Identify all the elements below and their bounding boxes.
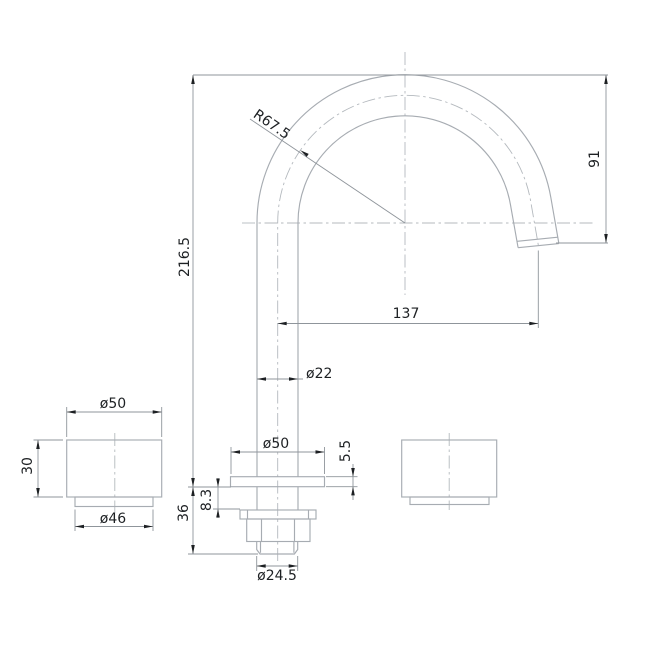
left-handle: [67, 440, 162, 507]
arrow-plate-thickness-bottom: [351, 487, 355, 496]
arrow-pipe-dia-left: [257, 377, 266, 381]
dim-label-base-plate-thickness: 5.5: [338, 440, 354, 462]
arrow-counter-clearance-bottom: [216, 509, 220, 518]
left-handle-skirt: [75, 497, 153, 507]
arrow-counter-clearance-top: [216, 479, 220, 488]
dim-label-total-height: 216.5: [177, 237, 193, 277]
dim-label-thread-diameter: ø24.5: [257, 568, 297, 584]
arrow-spout-reach-right: [529, 322, 538, 326]
spout-pipe-centerline: [278, 95, 539, 561]
spout-outer-wall: [257, 75, 559, 477]
dim-label-counter-clearance: 8.3: [199, 489, 215, 511]
arrow-spout-height-bottom: [604, 234, 608, 243]
dim-label-handle-diameter: ø50: [100, 396, 126, 412]
spout-inner-wall: [298, 116, 518, 477]
dim-label-handle-height: 30: [20, 457, 36, 475]
left-handle-body: [67, 440, 162, 497]
arrowheads: [36, 75, 608, 568]
arrow-handle-dia-left: [67, 410, 76, 414]
arrow-shank-length-bottom: [191, 545, 195, 554]
arrow-total-height-bottom: [191, 478, 195, 487]
arrow-shank-length-top: [191, 487, 195, 496]
lock-nut: [247, 519, 310, 542]
arrow-handle-base-left: [75, 525, 84, 529]
arrow-handle-height-top: [36, 440, 40, 449]
dim-label-spout-reach: 137: [393, 306, 420, 322]
dim-label-handle-base-diameter: ø46: [100, 511, 126, 527]
dimension-lines: [38, 75, 606, 566]
threaded-shank: [257, 542, 298, 555]
spout-outlet-inner-edge: [517, 237, 558, 241]
faucet-technical-drawing: R67.5 216.5 91 137 ø22 ø50 5.5 8.3 36 ø2…: [0, 0, 645, 645]
arrow-pipe-dia-right: [289, 377, 298, 381]
arrow-spout-reach-left: [278, 322, 287, 326]
arrow-plate-thickness-top: [351, 468, 355, 477]
dim-label-spout-radius: R67.5: [250, 107, 293, 143]
threaded-shank-thread-lines: [261, 542, 294, 553]
arrow-handle-dia-right: [153, 410, 162, 414]
dim-label-pipe-diameter: ø22: [306, 366, 332, 382]
arrow-base-plate-left: [231, 450, 240, 454]
arrow-base-plate-right: [316, 450, 325, 454]
dim-label-shank-length: 36: [176, 504, 192, 522]
arrow-handle-base-right: [144, 525, 153, 529]
arrow-spout-height-top: [604, 75, 608, 84]
spout-body: [257, 75, 559, 477]
dimension-labels: R67.5 216.5 91 137 ø22 ø50 5.5 8.3 36 ø2…: [20, 107, 603, 584]
drawing-canvas: R67.5 216.5 91 137 ø22 ø50 5.5 8.3 36 ø2…: [0, 0, 645, 645]
arrow-total-height-top: [191, 75, 195, 84]
arrow-handle-height-bottom: [36, 488, 40, 497]
dim-label-base-plate-diameter: ø50: [263, 436, 289, 452]
dim-label-spout-height: 91: [587, 150, 603, 168]
